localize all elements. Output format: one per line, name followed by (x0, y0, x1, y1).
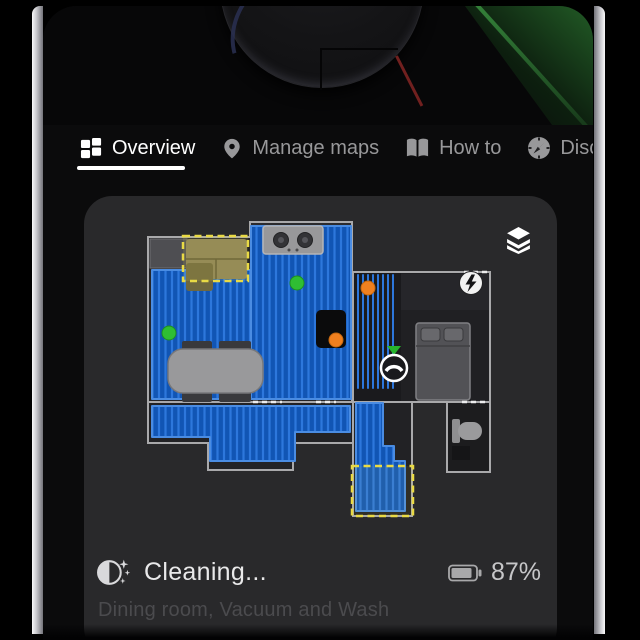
battery-percent: 87% (491, 558, 541, 587)
status-subtitle: Dining room, Vacuum and Wash (98, 599, 541, 622)
green-dot (290, 276, 304, 290)
zone-rectangle[interactable] (352, 466, 413, 516)
green-dot (162, 326, 176, 340)
phone-right-edge (594, 6, 605, 634)
cleaning-progress-icon (96, 556, 131, 589)
app-screen: Overview Manage maps How to (43, 6, 593, 640)
tab-how-to[interactable]: How to (405, 137, 501, 160)
red-laser-line (395, 55, 423, 106)
map-pin-icon (221, 137, 243, 160)
tab-label: Manage maps (252, 137, 379, 160)
layers-icon (506, 227, 531, 254)
status-title: Cleaning... (144, 558, 267, 587)
stove (263, 226, 323, 254)
robot-seam (322, 48, 398, 50)
map-card[interactable]: Cleaning... 87% Dining room, Vacuum and … (84, 196, 557, 640)
orange-dot (329, 333, 343, 347)
tab-label: How to (439, 137, 501, 160)
dining-table-set (168, 341, 263, 402)
robot-hero-image (43, 6, 593, 125)
no-go-zone[interactable] (183, 236, 248, 281)
map-layers-button[interactable] (500, 222, 536, 258)
orange-dot (361, 281, 375, 295)
phone-mockup: Overview Manage maps How to (0, 0, 640, 640)
tab-label: Discover (560, 137, 593, 160)
open-book-icon (405, 137, 430, 159)
tab-discover[interactable]: Discover (527, 136, 593, 160)
active-tab-underline (77, 166, 185, 170)
tab-label: Overview (112, 137, 195, 160)
tab-overview[interactable]: Overview (80, 137, 195, 160)
charging-dock-marker[interactable] (460, 272, 483, 295)
grid-icon (80, 137, 103, 160)
tab-manage-maps[interactable]: Manage maps (221, 137, 379, 160)
battery-icon (448, 564, 482, 582)
bed (416, 323, 470, 400)
robot-seam (320, 48, 322, 90)
bottom-fade (43, 624, 593, 640)
sideboard (150, 239, 187, 268)
tab-bar: Overview Manage maps How to (43, 125, 593, 171)
battery-indicator: 87% (448, 558, 541, 587)
status-bar: Cleaning... 87% Dining room, Vacuum and … (84, 548, 557, 622)
phone-left-edge (32, 6, 43, 634)
compass-icon (527, 136, 551, 160)
map-canvas[interactable] (84, 204, 557, 540)
